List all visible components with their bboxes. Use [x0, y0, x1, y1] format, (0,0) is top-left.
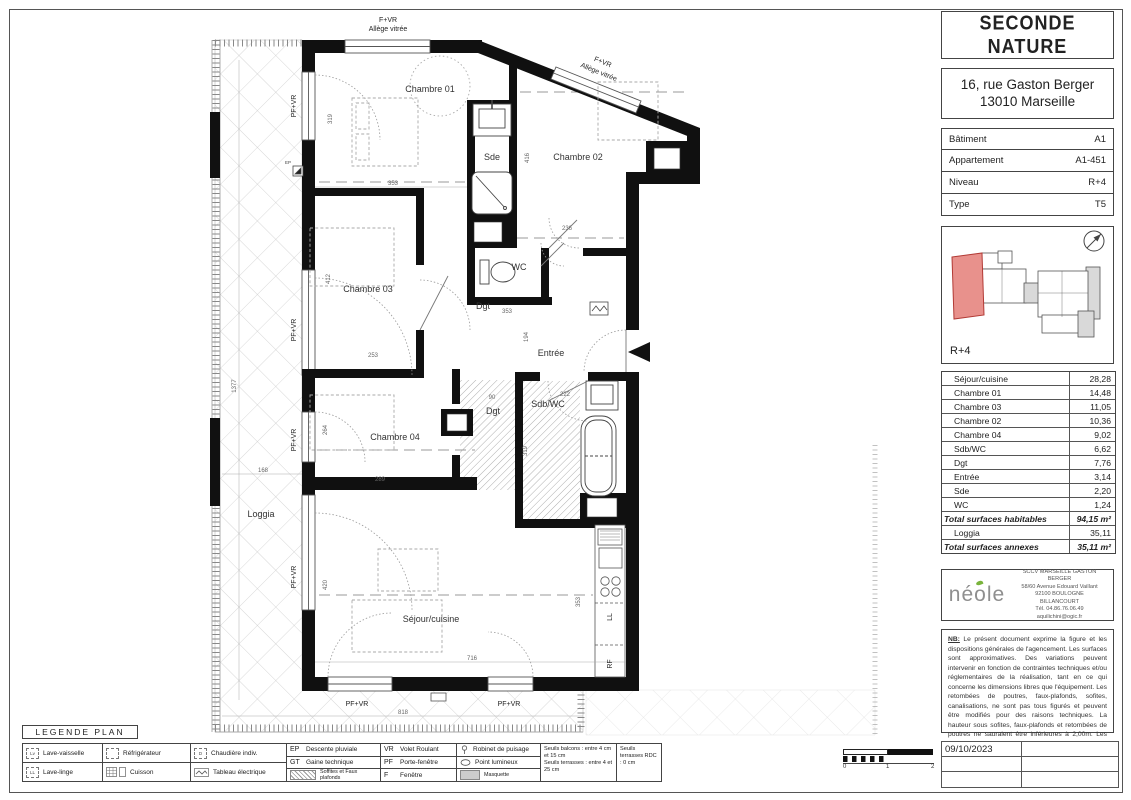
room-sejour: Séjour/cuisine [403, 614, 460, 624]
label-pfvr-1: PF+VR [291, 95, 298, 118]
legend-robinet: Robinet de puisage [457, 744, 540, 757]
room-dgt2: Dgt [486, 406, 501, 416]
label-pfvr-5: PF+VR [346, 701, 369, 708]
info-row-niveau: NiveauR+4 [941, 172, 1114, 194]
disclaimer: NB: Le présent document exprime la figur… [941, 629, 1114, 733]
svg-text:353: 353 [576, 596, 582, 607]
label-ep: EP [285, 160, 291, 165]
cuisson-icon [106, 767, 126, 777]
legend-seuils-balcons: Seuils balcons : entre 4 cm et 15 cm Seu… [541, 744, 616, 776]
surface-row: WC1,24 [942, 498, 1115, 512]
legend-gt: GTGaine technique [287, 757, 380, 770]
robinet-icon [460, 745, 469, 754]
legend-tableau: Tableau électrique [191, 763, 286, 781]
legend-f: FFenêtre [381, 769, 456, 781]
svg-text:194: 194 [524, 331, 530, 342]
sde-sink [473, 100, 511, 136]
developer-logo: néole [942, 583, 1012, 607]
project-title-box: SECONDE NATURE [941, 11, 1114, 59]
entrance-arrow-icon [628, 342, 650, 362]
surface-table: Séjour/cuisine28,28 Chambre 0114,48 Cham… [941, 371, 1116, 554]
svg-text:420: 420 [323, 579, 329, 590]
date-value: 09/10/2023 [942, 742, 1022, 757]
svg-text:412: 412 [326, 273, 332, 284]
key-plan-level: R+4 [950, 345, 971, 357]
svg-text:818: 818 [398, 710, 409, 716]
svg-text:168: 168 [258, 468, 269, 474]
room-chambre03: Chambre 03 [343, 284, 393, 294]
legend-masquette: Masquette [457, 769, 540, 781]
legend-table: Lv Lave-vaisselle LL Lave-linge Réfrigér… [22, 743, 662, 782]
room-sde: Sde [484, 152, 500, 162]
svg-text:319: 319 [523, 445, 529, 456]
ep-icon [293, 166, 303, 176]
svg-text:236: 236 [562, 226, 573, 232]
room-chambre01: Chambre 01 [405, 84, 455, 94]
room-dgt: Dgt [476, 301, 491, 311]
surface-row: Chambre 049,02 [942, 428, 1115, 442]
electrical-panel-icon [590, 302, 608, 315]
surface-total-annexes: Total surfaces annexes35,11 m² [942, 540, 1115, 553]
surface-row-loggia: Loggia35,11 [942, 526, 1115, 540]
key-plan-drawing [942, 227, 1113, 363]
scale-segment-white [843, 749, 888, 755]
kitchen-counter [595, 525, 625, 677]
room-chambre02: Chambre 02 [553, 152, 603, 162]
nb-label: NB: [948, 636, 960, 643]
shower [472, 172, 512, 214]
legend-ep: EPDescente pluviale [287, 744, 380, 757]
floor-plan: Chambre 01 Chambre 02 Chambre 03 Chambre… [0, 0, 945, 760]
surface-row: Chambre 0210,36 [942, 414, 1115, 428]
north-compass-icon [1084, 231, 1104, 251]
room-wc: WC [512, 262, 527, 272]
room-loggia: Loggia [247, 509, 274, 519]
developer-block: néole SCCV MARSEILLE GASTON BERGER 58/60… [941, 569, 1114, 621]
date-table: 09/10/2023 [941, 741, 1119, 788]
label-allege-top: Allège vitrée [369, 26, 408, 33]
surface-row: Séjour/cuisine28,28 [942, 372, 1115, 386]
room-chambre04: Chambre 04 [370, 432, 420, 442]
point-lumineux-icon [460, 759, 471, 766]
svg-text:353: 353 [388, 181, 399, 187]
surface-total-habitable: Total surfaces habitables94,15 m² [942, 512, 1115, 526]
wall-labels: F+VR Allège vitrée F+VR Allège vitrée PF… [285, 17, 618, 708]
washbasin [586, 381, 618, 410]
surface-row: Sde2,20 [942, 484, 1115, 498]
surface-row: Chambre 0311,05 [942, 400, 1115, 414]
surface-row: Entrée3,14 [942, 470, 1115, 484]
legend-pf: PFPorte-fenêtre [381, 757, 456, 770]
info-row-type: TypeT5 [941, 194, 1114, 216]
svg-text:416: 416 [525, 152, 531, 163]
outer-walls [302, 40, 700, 691]
svg-text:716: 716 [467, 656, 478, 662]
refrigerateur-icon [106, 748, 119, 759]
label-pfvr-6: PF+VR [498, 701, 521, 708]
lave-linge-icon: LL [26, 767, 39, 778]
project-title: SECONDE NATURE [942, 12, 1113, 58]
key-plan-highlighted-unit [952, 253, 984, 319]
surface-row: Chambre 0114,48 [942, 386, 1115, 400]
info-row-appartement: AppartementA1-451 [941, 150, 1114, 172]
project-address-box: 16, rue Gaston Berger 13010 Marseille [941, 68, 1114, 119]
label-ll: LL [607, 613, 614, 621]
legend-lave-vaisselle: Lv Lave-vaisselle [23, 744, 102, 763]
address-line2: 13010 Marseille [980, 94, 1075, 111]
lave-vaisselle-icon: Lv [26, 748, 39, 759]
scale-segment-black [888, 749, 933, 755]
chaudiere-icon: D [194, 748, 207, 759]
legend-vr: VRVolet Roulant [381, 744, 456, 757]
address-line1: 16, rue Gaston Berger [961, 77, 1095, 94]
label-pfvr-4: PF+VR [291, 566, 298, 589]
svg-text:353: 353 [502, 309, 513, 315]
legend-lave-linge: LL Lave-linge [23, 763, 102, 781]
label-rf: RF [607, 659, 614, 668]
unit-info-table: BâtimentA1 AppartementA1-451 NiveauR+4 T… [941, 128, 1114, 216]
bathtub [581, 416, 616, 496]
label-pfvr-3: PF+VR [291, 429, 298, 452]
info-row-batiment: BâtimentA1 [941, 128, 1114, 150]
masquette-icon [460, 770, 480, 780]
label-fvr-top: F+VR [379, 17, 397, 24]
developer-contact: SCCV MARSEILLE GASTON BERGER 58/60 Avenu… [1012, 569, 1113, 622]
key-plan: R+4 [941, 226, 1114, 364]
scale-checker [843, 756, 888, 762]
svg-text:319: 319 [328, 113, 334, 124]
scale-labels: 0 1 2 [843, 764, 938, 772]
label-pfvr-2: PF+VR [291, 319, 298, 342]
scale-bar: 0 1 2 [843, 749, 938, 772]
toilet [480, 260, 515, 284]
svg-text:264: 264 [323, 424, 329, 435]
room-entree: Entrée [538, 348, 565, 358]
legend-soffites: Soffites et Faux plafonds [287, 769, 380, 781]
floor-plan-sheet: { "header": { "project": "SECONDE NATURE… [0, 0, 1131, 800]
svg-text:222: 222 [560, 392, 571, 398]
legend-chaudiere: D Chaudière indiv. [191, 744, 286, 763]
svg-text:90: 90 [489, 395, 496, 401]
legend-title: LEGENDE PLAN [22, 725, 138, 739]
light-point-icon [431, 693, 446, 701]
room-sdb: Sdb/WC [531, 399, 565, 409]
svg-text:289: 289 [375, 477, 386, 483]
legend-point-lumineux: Point lumineux [457, 757, 540, 770]
svg-text:1377: 1377 [232, 379, 238, 393]
surface-row: Dgt7,76 [942, 456, 1115, 470]
legend-refrigerateur: Réfrigérateur [103, 744, 190, 763]
wall-notch [654, 148, 680, 169]
soffites-hatch-icon [290, 770, 316, 780]
tableau-electrique-icon [194, 768, 209, 777]
legend-cuisson: Cuisson [103, 763, 190, 781]
surface-row: Sdb/WC6,62 [942, 442, 1115, 456]
legend-seuils-rdc: Seuils terrasses RDC : 0 cm [617, 744, 661, 769]
svg-text:253: 253 [368, 353, 379, 359]
